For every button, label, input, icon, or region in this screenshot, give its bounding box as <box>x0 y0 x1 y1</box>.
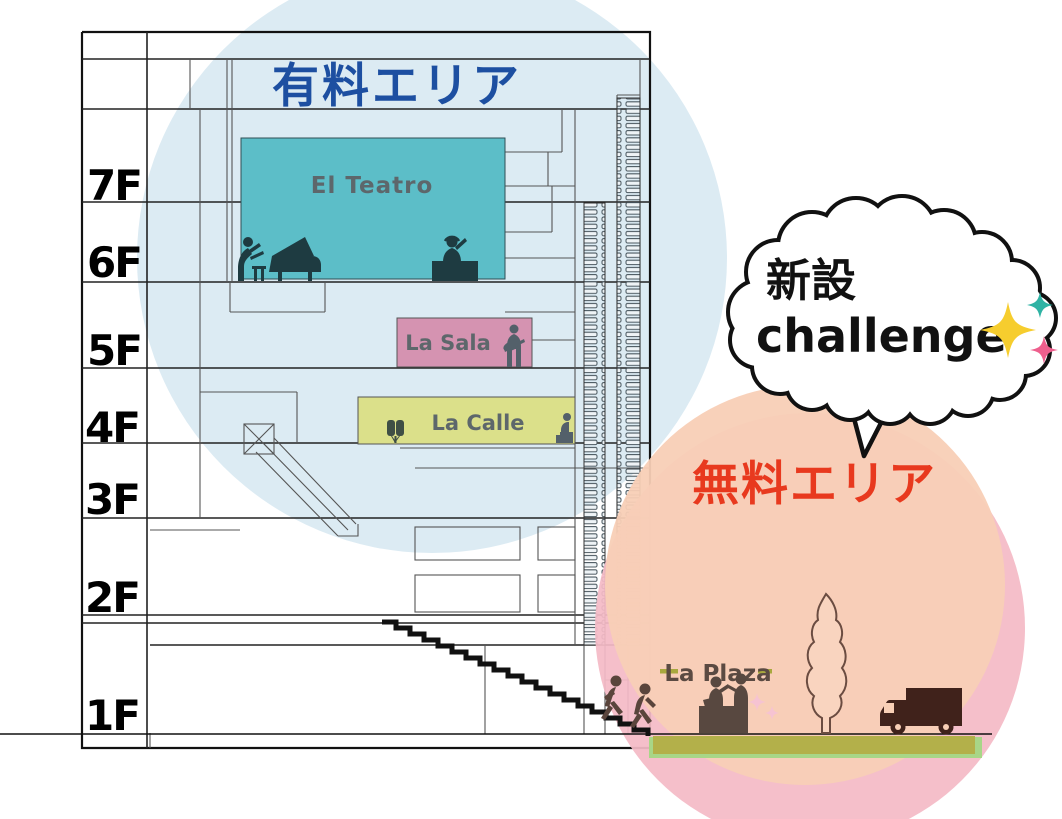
floor-label-5f: 5F <box>87 326 141 375</box>
venue-label-la-sala: La Sala <box>405 331 491 355</box>
floor-label-7f: 7F <box>87 161 141 210</box>
venue-la-sala: La Sala <box>397 318 532 367</box>
cross-section-diagram: El Teatro La Sala <box>0 0 1062 819</box>
bubble-text-line2: challenge <box>756 309 1007 363</box>
floor-label-3f: 3F <box>85 475 139 524</box>
floor-label-4f: 4F <box>85 403 139 452</box>
floor-label-6f: 6F <box>87 238 141 287</box>
paid-area-title: 有料エリア <box>272 59 522 114</box>
venue-label-el-teatro: El Teatro <box>311 173 434 199</box>
floor-label-1f: 1F <box>85 691 139 740</box>
ground-strip-olive <box>653 736 975 754</box>
bubble-text-line1: 新設 <box>766 254 856 307</box>
floor-labels: 7F 6F 5F 4F 3F 2F 1F <box>85 161 141 740</box>
venue-la-calle: La Calle <box>358 397 575 444</box>
venue-el-teatro: El Teatro <box>238 138 505 281</box>
venue-label-la-calle: La Calle <box>431 411 524 435</box>
free-area-title: 無料エリア <box>692 457 937 512</box>
diagram-canvas: El Teatro La Sala <box>0 0 1062 819</box>
floor-label-2f: 2F <box>85 573 139 622</box>
